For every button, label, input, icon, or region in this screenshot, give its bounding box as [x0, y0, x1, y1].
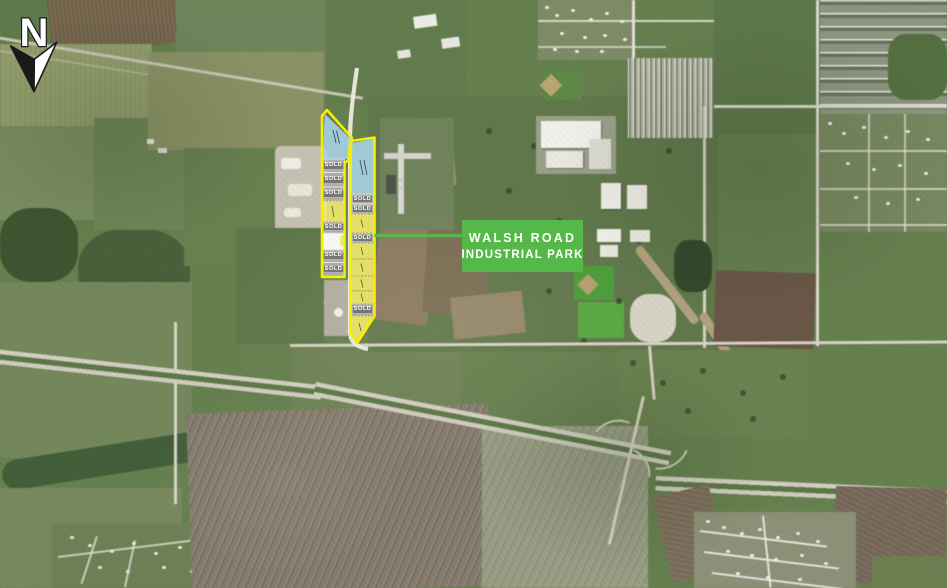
sold-parcel-tag: SOLD — [323, 252, 344, 260]
sold-parcel-tag: SOLD — [352, 195, 373, 203]
sold-parcel-tag: SOLD — [323, 223, 344, 231]
leader-line — [375, 234, 463, 237]
sold-parcel-tag: SOLD — [352, 306, 373, 314]
parcel-available-yellow — [351, 243, 375, 259]
parcel-available-yellow — [351, 214, 375, 233]
title-card: WALSH ROAD INDUSTRIAL PARK — [462, 220, 583, 272]
sold-parcel-tag: SOLD — [323, 190, 344, 198]
title-line-1: WALSH ROAD — [469, 231, 576, 245]
sold-parcel-tag: SOLD — [352, 205, 373, 213]
sold-parcel-tag: SOLD — [323, 265, 344, 273]
title-line-2: INDUSTRIAL PARK — [461, 249, 583, 261]
parcel-available-yellow — [351, 259, 375, 276]
parcel-available-yellow — [323, 201, 345, 222]
sold-parcel-tag: SOLD — [352, 234, 373, 242]
sold-parcel-tag: SOLD — [323, 176, 344, 184]
parcel-available-yellow — [351, 276, 375, 291]
parcel-available-blue — [351, 139, 375, 195]
north-arrow: N — [6, 4, 68, 100]
sold-parcel-tag: SOLD — [323, 162, 344, 170]
north-label: N — [20, 11, 49, 55]
parcel-available-yellow — [351, 291, 375, 304]
aerial-map: SOLD SOLD SOLD SOLD SOLD SOLD SOLD SOLD … — [0, 0, 947, 588]
parcel-annotation-overlay — [0, 0, 947, 588]
